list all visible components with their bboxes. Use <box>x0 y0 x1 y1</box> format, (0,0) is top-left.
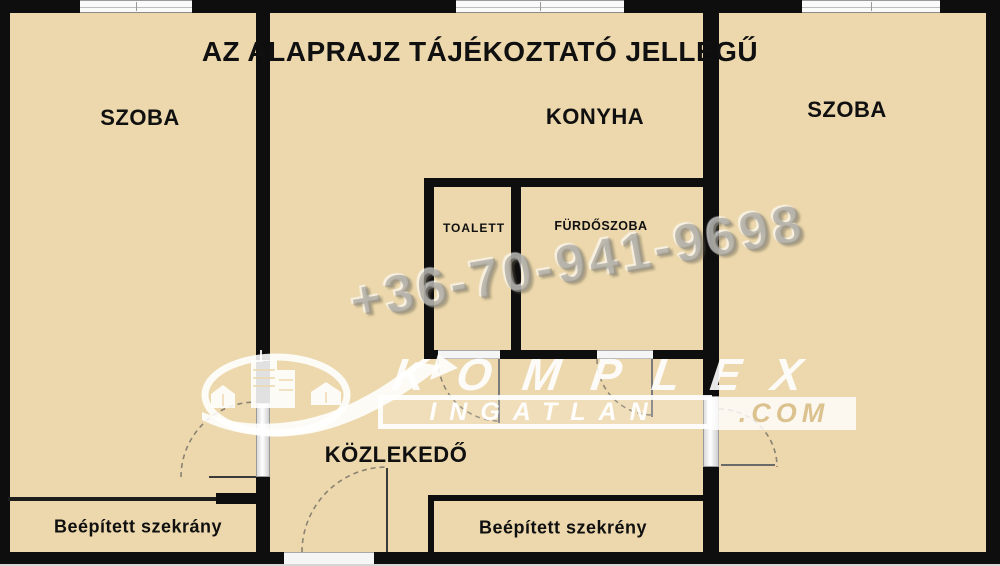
room-label-toalett: TOALETT <box>443 221 505 235</box>
logo-brand-text: KOMPLEX <box>390 349 837 401</box>
room-label-szoba-left: SZOBA <box>100 105 180 131</box>
door-arc <box>302 467 387 552</box>
plan-title: AZ ALAPRAJZ TÁJÉKOZTATÓ JELLEGŰ <box>202 36 758 68</box>
room-label-szoba-right: SZOBA <box>807 97 887 123</box>
wardrobe-label-middle: Beépített szekrény <box>479 518 647 539</box>
wardrobe-label-left: Beépített szekrány <box>54 517 222 538</box>
floor-plan: AZ ALAPRAJZ TÁJÉKOZTATÓ JELLEGŰ SZOBA KO… <box>0 0 1000 566</box>
logo-ingatlan-box: INGATLAN <box>378 395 712 429</box>
room-label-konyha: KONYHA <box>546 104 644 130</box>
logo-com-box: .COM <box>712 397 856 430</box>
